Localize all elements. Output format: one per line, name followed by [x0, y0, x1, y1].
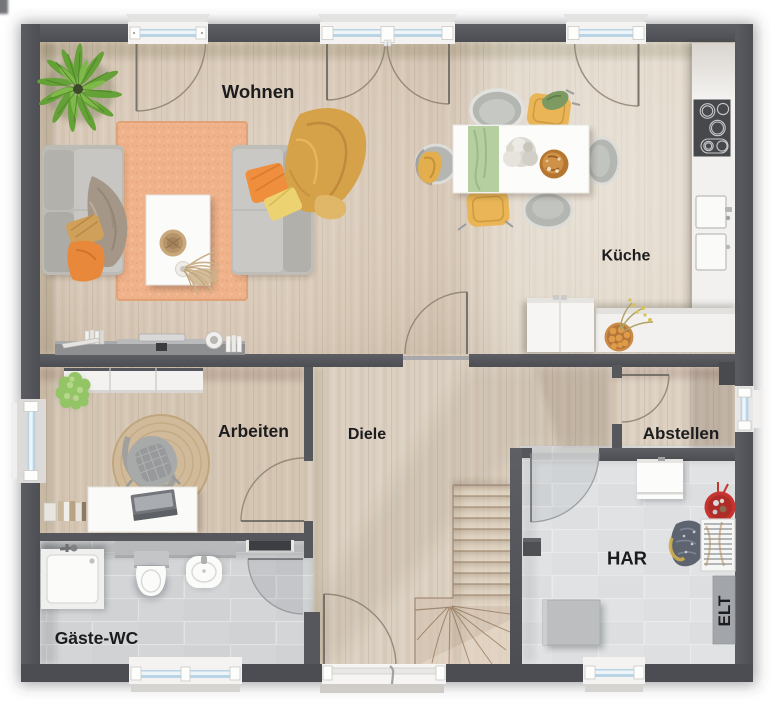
svg-text:ELT: ELT [715, 595, 734, 626]
svg-text:HAR: HAR [607, 548, 647, 569]
svg-text:Gäste-WC: Gäste-WC [55, 628, 139, 648]
svg-text:Küche: Küche [602, 248, 651, 265]
svg-text:Diele: Diele [348, 426, 386, 443]
svg-text:Arbeiten: Arbeiten [218, 421, 289, 441]
svg-text:Wohnen: Wohnen [222, 81, 295, 102]
svg-text:Abstellen: Abstellen [643, 424, 720, 443]
